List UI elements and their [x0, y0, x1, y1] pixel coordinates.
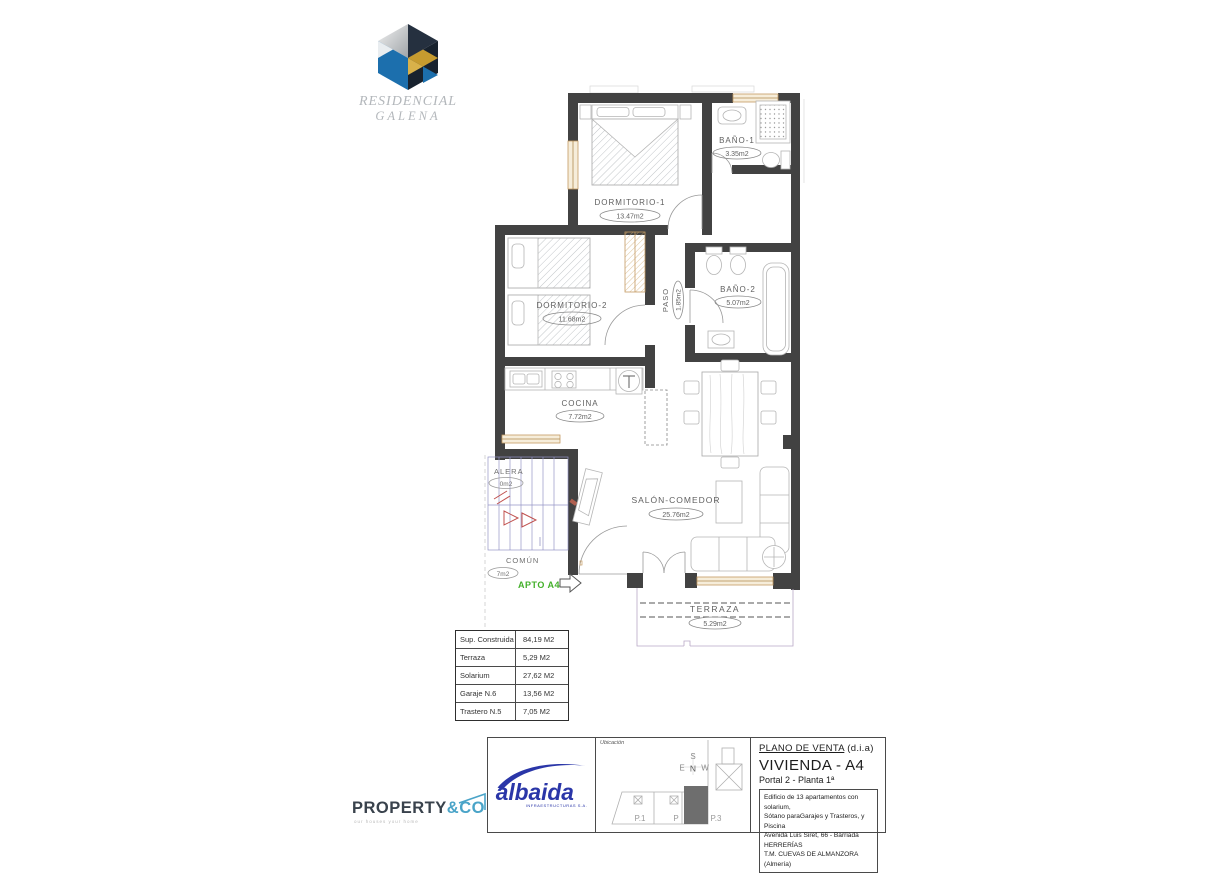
room-area-terraza: 5.29m2: [703, 621, 726, 628]
comun-label: COMÚN: [506, 556, 539, 565]
agency-name: PROPERTY&CO: [352, 799, 485, 818]
room-label-bano1: BAÑO-1: [719, 136, 755, 145]
description-line: T.M. CUEVAS DE ALMANZORA (Almería): [764, 850, 873, 869]
room-label-salon: SALÓN-COMEDOR: [631, 495, 720, 505]
agency-name-accent: &CO: [447, 799, 485, 817]
portal-3-label: P.3: [711, 814, 723, 823]
escalera-label: ALERA: [494, 467, 524, 476]
room-area-dormitorio2: 11.68m2: [559, 317, 586, 324]
row-label: Solarium: [456, 667, 516, 684]
project-description: Edificio de 13 apartamentos con solarium…: [759, 789, 878, 873]
house-roof-icon: [457, 791, 491, 811]
room-area-dormitorio1: 13.47m2: [616, 214, 643, 221]
portal-2-label: P: [673, 814, 678, 823]
brand-line2: GALENA: [352, 109, 464, 124]
row-label: Trastero N.5: [456, 703, 516, 720]
table-row: Solarium 27,62 M2: [456, 667, 568, 685]
plan-info-cell: PLANO DE VENTA (d.i.a) VIVIENDA - A4 Por…: [751, 738, 885, 832]
row-label: Garaje N.6: [456, 685, 516, 702]
escalera-area: 0m2: [500, 481, 513, 488]
brand-line1: RESIDENCIAL: [352, 94, 464, 110]
room-area-paso: 1.85m2: [676, 289, 683, 311]
description-line: Avenida Luis Siret, 66 - Barriada HERRER…: [764, 831, 873, 850]
room-label-dormitorio1: DORMITORIO-1: [595, 198, 666, 207]
apto-a4-label: APTO A4: [518, 580, 560, 590]
ubicacion-label: Ubicación: [600, 740, 624, 746]
row-label: Terraza: [456, 649, 516, 666]
residencial-galena-logo: RESIDENCIAL GALENA: [352, 22, 464, 124]
table-row: Terraza 5,29 M2: [456, 649, 568, 667]
compass-icon: S E N W: [679, 752, 709, 775]
site-map: S E N W P.1 P P.3: [596, 738, 751, 830]
row-value: 27,62 M2: [516, 671, 568, 680]
agency-name-main: PROPERTY: [352, 799, 447, 817]
room-label-bano2: BAÑO-2: [720, 285, 756, 294]
apartment-entry-tag: APTO A4: [518, 574, 581, 592]
dwelling-title: VIVIENDA - A4: [759, 757, 878, 774]
table-row: Sup. Construida 84,19 M2: [456, 631, 568, 649]
highlighted-portal-block: [684, 786, 708, 824]
row-label: Sup. Construida: [456, 631, 516, 648]
room-label-terraza: TERRAZA: [690, 604, 740, 614]
plan-type-line: PLANO DE VENTA (d.i.a): [759, 743, 878, 754]
compass-n: N: [690, 764, 696, 774]
room-area-cocina: 7.72m2: [568, 414, 591, 421]
portal-labels: P.1 P P.3: [635, 814, 723, 823]
company-name: albaida: [495, 779, 573, 805]
room-area-bano1: 3.35m2: [725, 151, 748, 158]
site-buildings: [612, 740, 742, 824]
albaida-logo: albaida INFRAESTRUCTURAS S.A.: [494, 759, 590, 811]
company-subtitle: INFRAESTRUCTURAS S.A.: [525, 803, 587, 808]
room-label-cocina: COCINA: [561, 399, 598, 408]
room-area-salon: 25.76m2: [662, 512, 689, 519]
cube-logo-icon: [369, 22, 447, 92]
floorplan-drawing: DORMITORIO-1 13.47m2 BAÑO-1 3.35m2 DORMI…: [480, 85, 810, 670]
room-area-bano2: 5.07m2: [726, 300, 749, 307]
title-block: albaida INFRAESTRUCTURAS S.A. Ubicación …: [487, 737, 886, 833]
common-zone-labels: ALERA 0m2 COMÚN 7m2: [488, 467, 539, 579]
table-row: Trastero N.5 7,05 M2: [456, 703, 568, 720]
company-logo-cell: albaida INFRAESTRUCTURAS S.A.: [488, 738, 596, 832]
plan-type: PLANO DE VENTA: [759, 743, 844, 754]
description-line: Sótano paraGarajes y Trasteros, y Piscin…: [764, 812, 873, 831]
plan-type-suffix: (d.i.a): [847, 743, 873, 754]
property-co-logo: PROPERTY&CO our houses your home: [352, 799, 485, 824]
row-value: 13,56 M2: [516, 689, 568, 698]
row-value: 5,29 M2: [516, 653, 568, 662]
comun-area: 7m2: [497, 571, 510, 578]
location-panel: Ubicación S E N W P.1: [596, 738, 751, 832]
entry-arrow-icon: [560, 574, 581, 592]
room-label-paso: PASO: [661, 288, 670, 312]
surface-table: Sup. Construida 84,19 M2 Terraza 5,29 M2…: [455, 630, 569, 721]
portal-1-label: P.1: [635, 814, 647, 823]
description-line: Edificio de 13 apartamentos con solarium…: [764, 793, 873, 812]
room-label-dormitorio2: DORMITORIO-2: [537, 301, 608, 310]
row-value: 84,19 M2: [516, 635, 568, 644]
compass-e: E: [679, 764, 684, 773]
agency-tagline: our houses your home: [354, 819, 485, 824]
table-row: Garaje N.6 13,56 M2: [456, 685, 568, 703]
portal-floor: Portal 2 - Planta 1ª: [759, 775, 878, 785]
row-value: 7,05 M2: [516, 707, 568, 716]
compass-w: W: [701, 764, 709, 773]
compass-s: S: [690, 752, 695, 761]
